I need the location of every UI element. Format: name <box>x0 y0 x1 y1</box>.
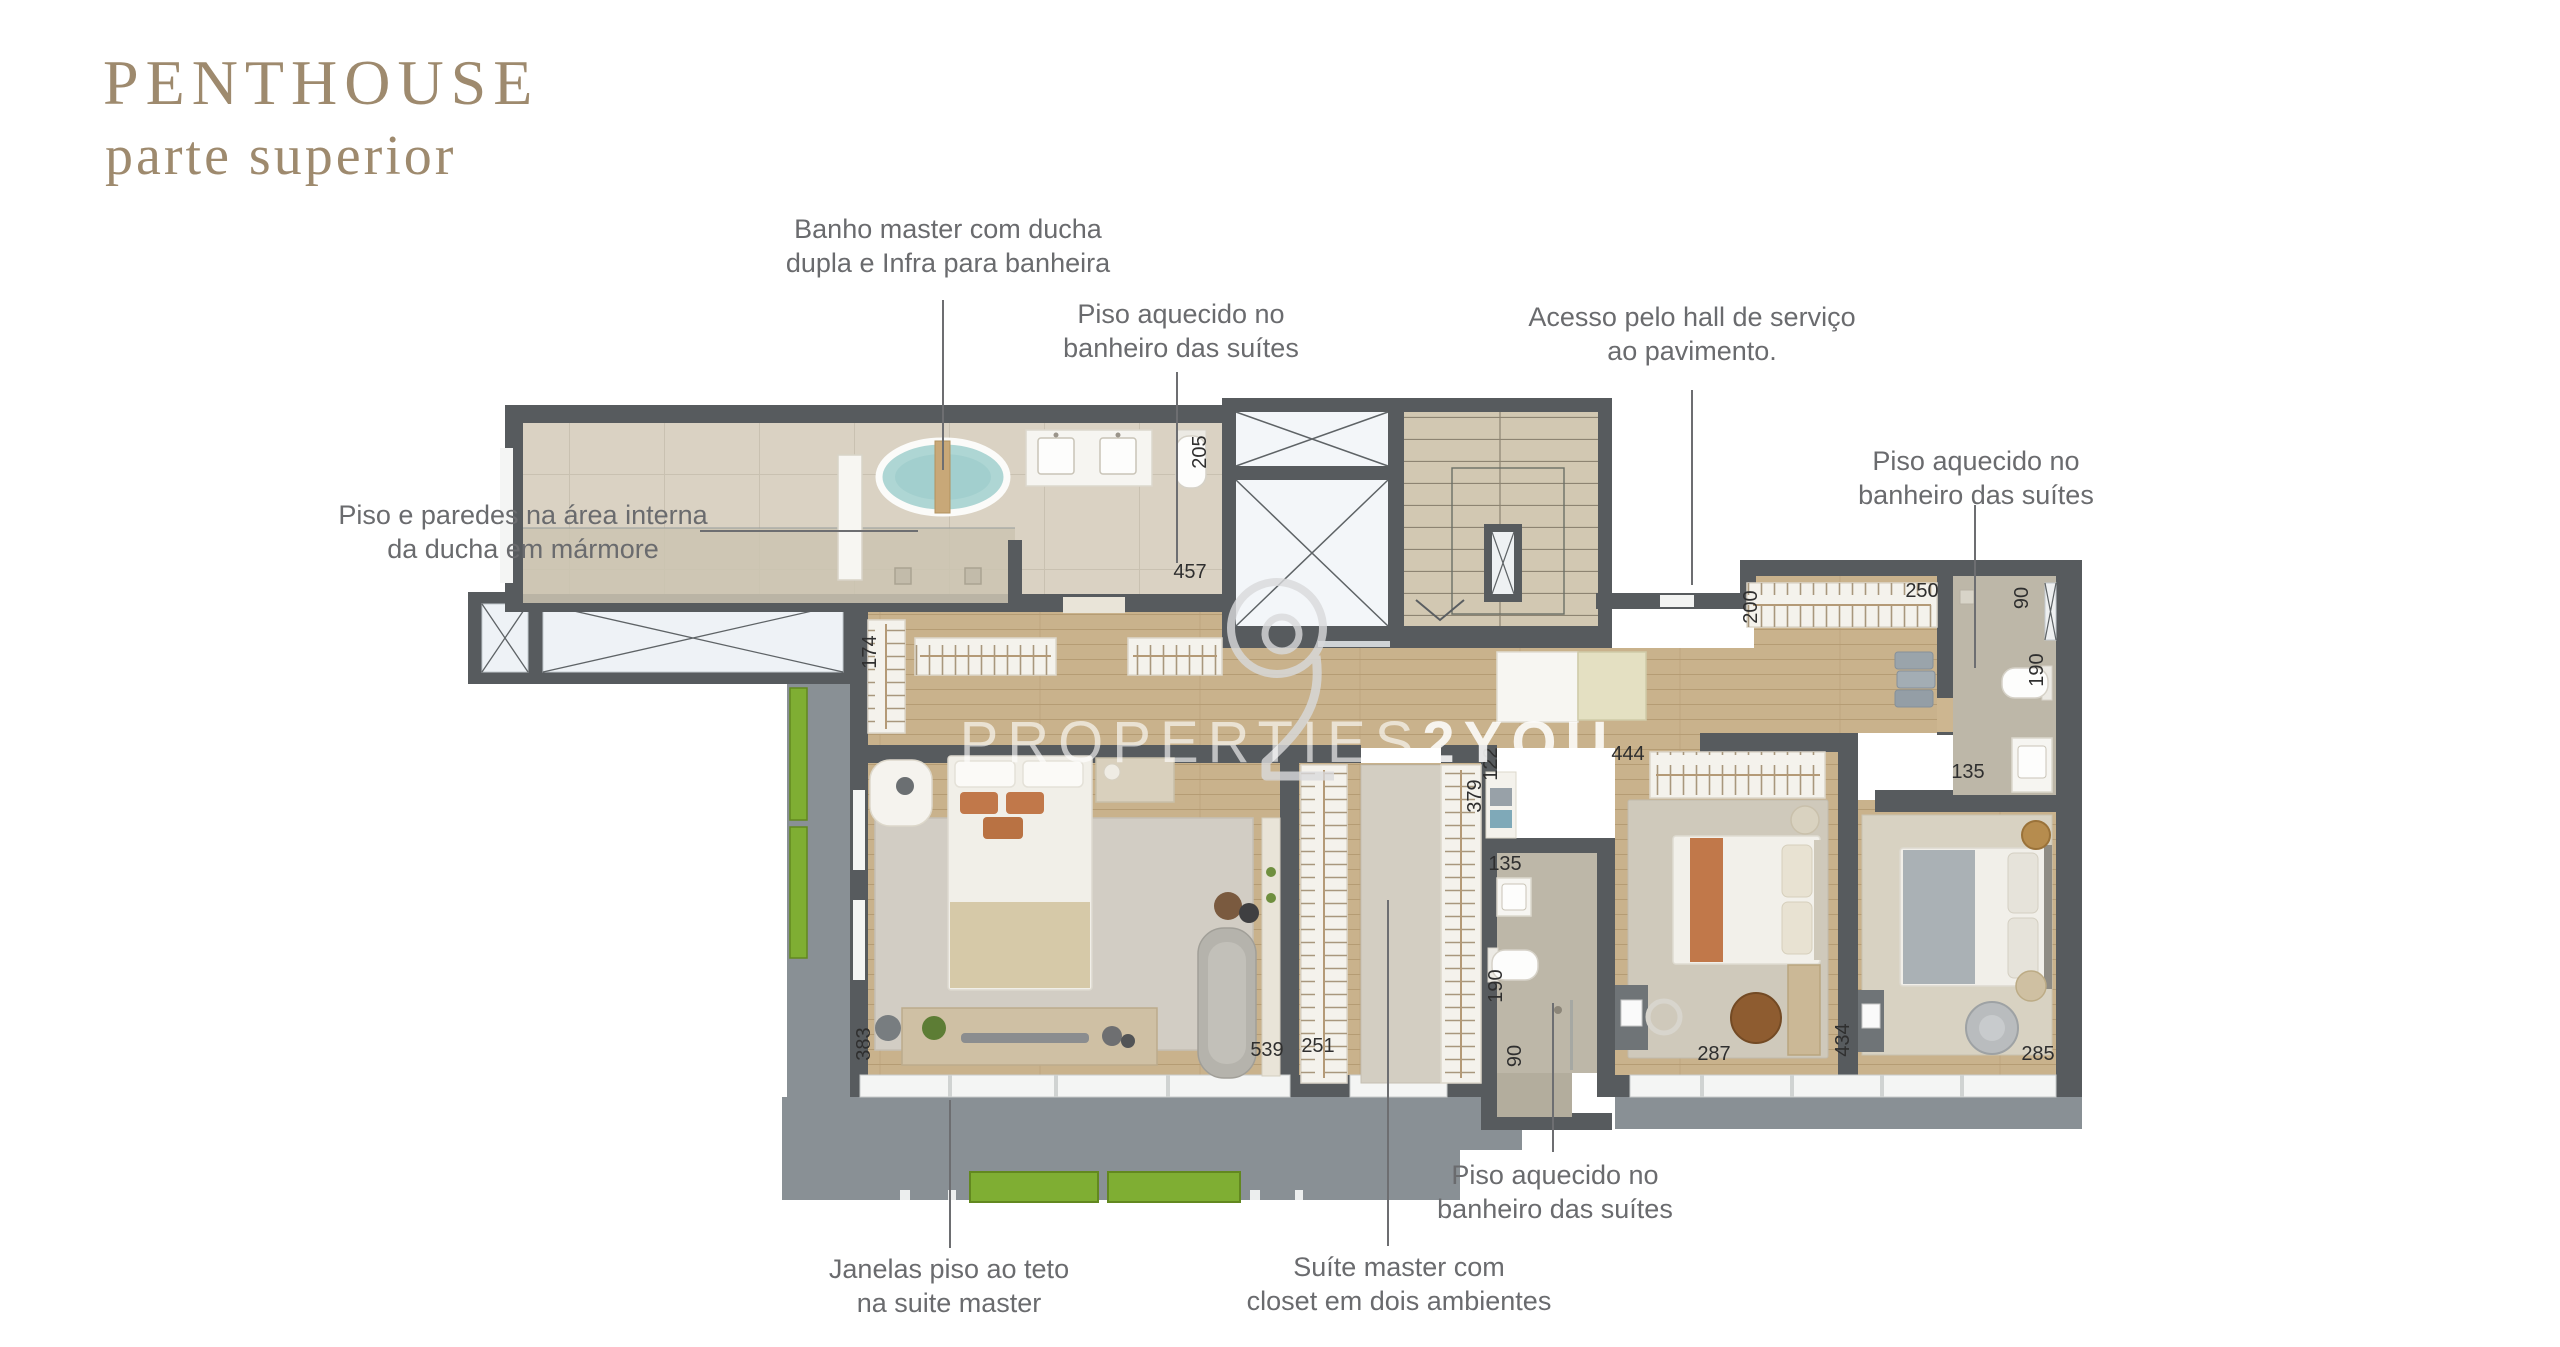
dimension-label: 135 <box>1951 761 1984 783</box>
floorplan-drawing: 2054571742002509019013544437912213519090… <box>0 0 2560 1347</box>
dimension-label: 539 <box>1250 1039 1283 1061</box>
dimension-label: 457 <box>1173 561 1206 583</box>
note-piso-paredes: Piso e paredes na área interna da ducha … <box>338 498 707 566</box>
dimension-label: 379 <box>1464 779 1486 812</box>
dimension-label: 250 <box>1905 580 1938 602</box>
note-piso-suites-right: Piso aquecido no banheiro das suítes <box>1858 444 2094 512</box>
note-suite-master: Suíte master com closet em dois ambiente… <box>1247 1250 1552 1318</box>
dimension-label: 190 <box>2026 653 2048 686</box>
pouf <box>1731 993 1781 1043</box>
dimension-label: 190 <box>1485 969 1507 1002</box>
dimension-label: 135 <box>1488 853 1521 875</box>
door-threshold <box>1063 597 1125 613</box>
note-piso-suites-bottom: Piso aquecido no banheiro das suítes <box>1437 1158 1673 1226</box>
title-block: PENTHOUSE parte superior <box>103 48 539 186</box>
dimension-label: 90 <box>2011 587 2033 609</box>
round-table <box>2016 971 2046 1001</box>
note-piso-suites-top: Piso aquecido no banheiro das suítes <box>1063 297 1299 365</box>
suite-2 <box>1858 815 2052 1055</box>
watermark-text: PROPERTIES2YOU <box>960 710 1617 775</box>
note-janelas: Janelas piso ao teto na suite master <box>829 1252 1069 1320</box>
floorplan-page: 2054571742002509019013544437912213519090… <box>0 0 2560 1347</box>
bed-throw <box>950 902 1090 988</box>
shower-glass <box>1570 1000 1573 1070</box>
gold-lamp <box>2022 821 2050 849</box>
shower-bench <box>838 455 862 580</box>
orange-throw <box>1690 838 1723 962</box>
suites-windows <box>1630 1075 2056 1097</box>
side-table <box>1788 965 1820 1055</box>
dimension-label: 434 <box>1832 1023 1854 1056</box>
page-subtitle: parte superior <box>105 126 539 186</box>
elevator-door <box>1318 641 1394 647</box>
dimension-label: 200 <box>1740 590 1762 623</box>
dimension-label: 205 <box>1189 435 1211 468</box>
shelving <box>1262 818 1280 1076</box>
elevator-shafts <box>1222 398 1404 648</box>
note-acesso-hall: Acesso pelo hall de serviço ao pavimento… <box>1528 300 1855 368</box>
service-stairs <box>1390 398 1612 648</box>
dimension-label: 174 <box>859 635 881 668</box>
dimension-label: 287 <box>1697 1043 1730 1065</box>
dimension-label: 251 <box>1301 1035 1334 1057</box>
gray-blanket <box>1903 850 1975 984</box>
dimension-label: 90 <box>1504 1045 1526 1067</box>
service-hall-door <box>1660 595 1694 607</box>
bathroom-door-opening <box>1937 698 1953 732</box>
page-title: PENTHOUSE <box>103 48 539 118</box>
closet-runner-rug <box>1361 765 1441 1083</box>
dimension-label: 285 <box>2021 1043 2054 1065</box>
note-banho-master: Banho master com ducha dupla e Infra par… <box>786 212 1110 280</box>
dimension-label: 383 <box>853 1027 875 1060</box>
